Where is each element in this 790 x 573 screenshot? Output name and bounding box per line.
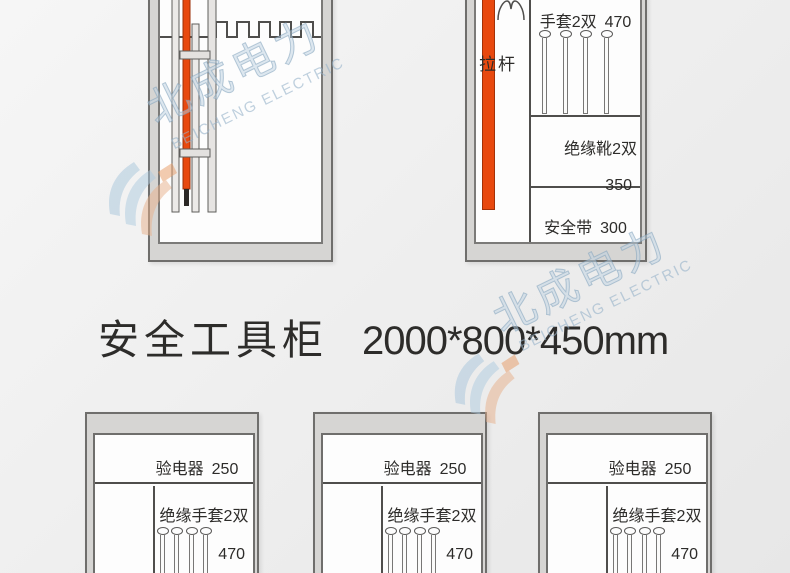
detector-label: 验电器 <box>156 461 204 478</box>
insulating-gloves-label: 绝缘手套2双 <box>383 502 481 526</box>
product-name: 安全工具柜 <box>98 306 328 366</box>
hanger-hook-icon <box>496 0 526 20</box>
glove-peg-icon <box>414 527 426 573</box>
glove-peg-icon <box>560 30 572 114</box>
glove-peg-icon <box>385 527 397 573</box>
rod-bracket <box>180 149 210 157</box>
product-dimensions: 2000*800*450mm <box>362 319 668 364</box>
compartment-gloves: 手套2双470 <box>531 0 640 117</box>
compartment-detector: 验电器250 <box>95 435 253 484</box>
detector-depth: 250 <box>440 461 467 478</box>
compartment-belt: 安全带300 <box>531 190 640 242</box>
insulating-gloves-depth: 470 <box>446 546 473 564</box>
short-cabinet-1-interior: 验电器250 绝缘手套2双 470 <box>93 433 255 573</box>
compartment-insulating-gloves: 绝缘手套2双 470 <box>323 486 481 573</box>
compartment-detector: 验电器250 <box>323 435 481 484</box>
short-cabinet-3-interior: 验电器250 绝缘手套2双 470 <box>546 433 708 573</box>
insulating-rod <box>208 0 216 212</box>
pull-rod-label: 拉杆 <box>479 50 529 75</box>
gloves-region: 绝缘手套2双 470 <box>383 486 481 573</box>
glove-peg-icon <box>601 30 613 114</box>
glove-peg-icon <box>428 527 440 573</box>
product-image-stage: 拉杆 手套2双470 绝缘靴2双 350 安全带300 <box>0 0 790 573</box>
compartment-column: 手套2双470 绝缘靴2双 350 安全带300 <box>531 0 640 242</box>
glove-peg-icon <box>653 527 665 573</box>
detector-depth: 250 <box>212 461 239 478</box>
tall-cabinet-compartments: 拉杆 手套2双470 绝缘靴2双 350 安全带300 <box>465 0 647 262</box>
page-title: 安全工具柜 2000*800*450mm <box>98 306 668 366</box>
detector-label-row: 验电器250 <box>548 455 706 479</box>
detector-label: 验电器 <box>609 461 657 478</box>
glove-peg-icon <box>639 527 651 573</box>
compartment-detector: 验电器250 <box>548 435 706 484</box>
detector-label-row: 验电器250 <box>95 455 253 479</box>
gloves-region: 绝缘手套2双 470 <box>155 486 253 573</box>
compartment-insulating-gloves: 绝缘手套2双 470 <box>95 486 253 573</box>
compartment-insulating-gloves: 绝缘手套2双 470 <box>548 486 706 573</box>
insulating-rods-drawing <box>160 0 321 242</box>
glove-peg-icon <box>580 30 592 114</box>
pull-rod-orange <box>482 0 495 210</box>
detector-label: 验电器 <box>384 461 432 478</box>
operating-rod-orange <box>183 0 190 189</box>
insulating-gloves-label: 绝缘手套2双 <box>608 502 706 526</box>
insulating-rod <box>172 0 179 212</box>
belt-label: 安全带 <box>544 220 592 237</box>
glove-peg-icon <box>157 527 169 573</box>
short-cabinet-3: 验电器250 绝缘手套2双 470 <box>538 412 712 573</box>
pull-rod-column: 拉杆 <box>476 0 531 242</box>
glove-peg-icon <box>610 527 622 573</box>
rod-bracket <box>180 51 210 59</box>
short-cabinet-1: 验电器250 绝缘手套2双 470 <box>85 412 259 573</box>
operating-rod-tip <box>184 189 189 206</box>
glove-peg-icon <box>200 527 212 573</box>
gloves-label: 手套2双 <box>540 14 597 31</box>
gloves-region: 绝缘手套2双 470 <box>608 486 706 573</box>
short-cabinet-2: 验电器250 绝缘手套2双 470 <box>313 412 487 573</box>
insulating-gloves-depth: 470 <box>218 546 245 564</box>
insulating-gloves-label: 绝缘手套2双 <box>155 502 253 526</box>
glove-peg-icon <box>399 527 411 573</box>
glove-peg-icon <box>539 30 551 114</box>
insulating-gloves-depth: 470 <box>671 546 698 564</box>
belt-depth: 300 <box>600 220 627 237</box>
detector-label-row: 验电器250 <box>323 455 481 479</box>
glove-peg-icon <box>186 527 198 573</box>
short-cabinet-2-interior: 验电器250 绝缘手套2双 470 <box>321 433 483 573</box>
gloves-depth: 470 <box>605 14 632 31</box>
compartment-boots: 绝缘靴2双 350 <box>531 117 640 188</box>
detector-depth: 250 <box>665 461 692 478</box>
boots-label: 绝缘靴2双 <box>531 135 640 159</box>
gloves-label-row: 手套2双470 <box>531 8 640 32</box>
glove-peg-icon <box>624 527 636 573</box>
tall-cabinet-rods-interior <box>158 0 323 244</box>
tall-cabinet-rods <box>148 0 333 262</box>
belt-label-row: 安全带300 <box>531 214 640 238</box>
tall-cabinet-compartments-interior: 拉杆 手套2双470 绝缘靴2双 350 安全带300 <box>474 0 642 244</box>
glove-peg-icon <box>171 527 183 573</box>
